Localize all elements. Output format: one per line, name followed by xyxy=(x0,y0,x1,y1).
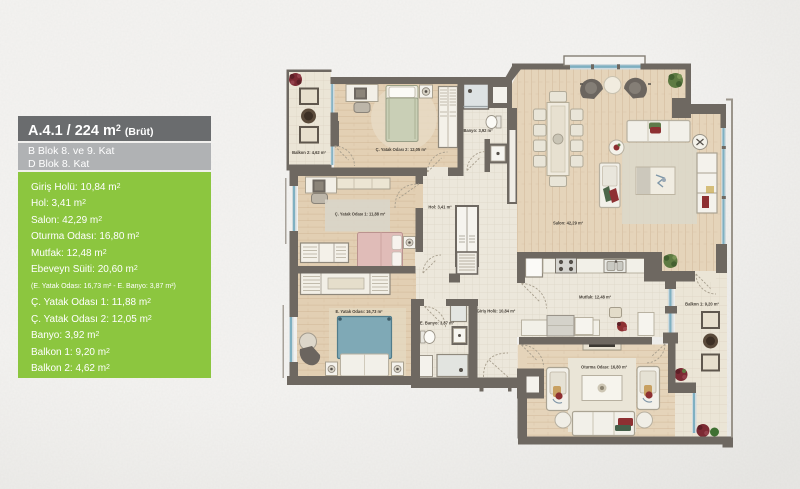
svg-text:Giriş Holü: 10,84 m²: Giriş Holü: 10,84 m² xyxy=(477,309,516,314)
svg-text:Oturma Odası: 16,80 m²: Oturma Odası: 16,80 m² xyxy=(581,365,628,370)
svg-text:Hol: 3,41 m²: Hol: 3,41 m² xyxy=(428,205,452,210)
svg-text:Banyo: 3,92 m²: Banyo: 3,92 m² xyxy=(463,128,493,133)
svg-text:Ç. Yatak Odası 2: 12,05 m²: Ç. Yatak Odası 2: 12,05 m² xyxy=(376,147,427,152)
svg-text:Balkon 1: 9,20 m²: Balkon 1: 9,20 m² xyxy=(685,302,719,307)
svg-text:Salon: 42,29 m²: Salon: 42,29 m² xyxy=(553,221,584,226)
svg-text:E. Yatak Odası: 16,73 m²: E. Yatak Odası: 16,73 m² xyxy=(335,309,383,314)
svg-text:Balkon 2: 4,62 m²: Balkon 2: 4,62 m² xyxy=(292,150,326,155)
svg-text:Mutfak: 12,48 m²: Mutfak: 12,48 m² xyxy=(579,295,612,300)
svg-text:Ç. Yatak Odası 1: 11,88 m²: Ç. Yatak Odası 1: 11,88 m² xyxy=(335,212,386,217)
svg-text:E. Banyo: 3,87 m²: E. Banyo: 3,87 m² xyxy=(420,321,455,326)
